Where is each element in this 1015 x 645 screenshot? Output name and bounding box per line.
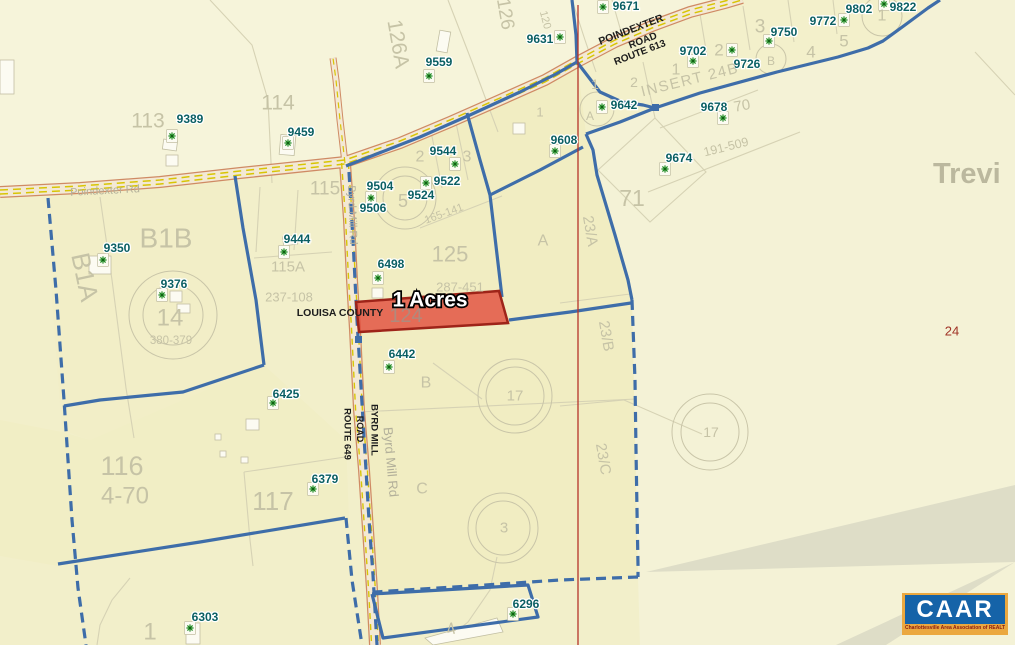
map-label: A xyxy=(586,109,594,123)
map-label: 125 xyxy=(432,242,469,267)
marker-dot xyxy=(883,3,885,5)
map-label: 3 xyxy=(463,149,472,166)
parcel-point-marker[interactable] xyxy=(373,272,384,285)
listing-number-label[interactable]: 9674 xyxy=(666,151,693,165)
map-label: A xyxy=(538,233,549,250)
building-footprint xyxy=(215,434,221,440)
building-footprint xyxy=(241,457,248,463)
marker-dot xyxy=(722,117,724,119)
listing-number-label[interactable]: 6296 xyxy=(513,597,540,611)
map-label: 2 xyxy=(630,74,638,90)
marker-dot xyxy=(601,106,603,108)
listing-number-label[interactable]: 6425 xyxy=(273,387,300,401)
listing-number-label[interactable]: 9376 xyxy=(161,277,188,291)
listing-number-label[interactable]: 9671 xyxy=(613,0,640,13)
marker-dot xyxy=(731,49,733,51)
marker-dot xyxy=(428,75,430,77)
map-label: 1 xyxy=(672,62,681,79)
listing-number-label[interactable]: 9350 xyxy=(104,241,131,255)
building-footprint xyxy=(513,123,525,134)
marker-dot xyxy=(454,163,456,165)
listing-number-label[interactable]: 6379 xyxy=(312,472,339,486)
map-label: 2 xyxy=(714,41,723,60)
map-label: 116 xyxy=(100,451,143,481)
map-label: Byrd Mill Rd xyxy=(345,185,359,245)
map-label: 237-108 xyxy=(265,290,313,305)
caar-logo[interactable]: CAAR Charlottesville Area Association of… xyxy=(902,593,1008,635)
marker-dot xyxy=(425,182,427,184)
parcel-point-marker[interactable] xyxy=(727,44,738,57)
marker-dot xyxy=(512,613,514,615)
map-label: 1 xyxy=(536,105,543,120)
listing-number-label[interactable]: 9544 xyxy=(430,144,457,158)
listing-number-label[interactable]: 9631 xyxy=(527,32,554,46)
building-footprint xyxy=(166,155,178,166)
marker-dot xyxy=(287,142,289,144)
listing-number-label[interactable]: 6303 xyxy=(192,610,219,624)
listing-number-label[interactable]: 9559 xyxy=(426,55,453,69)
listing-number-label[interactable]: 6442 xyxy=(389,347,416,361)
road-or-county-label: BYRD MILL xyxy=(369,404,380,456)
map-label: B1B xyxy=(140,223,193,254)
building-footprint xyxy=(170,291,182,302)
road-or-county-label: ROAD xyxy=(355,416,365,443)
acreage-label: 1 Acres xyxy=(392,289,467,312)
map-label: 115A xyxy=(271,259,305,276)
parcel-point-marker[interactable] xyxy=(167,130,178,143)
caar-logo-brand: CAAR xyxy=(905,595,1005,624)
map-label: 113 xyxy=(131,110,164,133)
listing-number-label[interactable]: 6498 xyxy=(378,257,405,271)
marker-dot xyxy=(370,197,372,199)
marker-dot xyxy=(559,36,561,38)
marker-dot xyxy=(312,488,314,490)
marker-dot xyxy=(768,40,770,42)
parcel-point-marker[interactable] xyxy=(424,70,435,83)
map-label: 2 xyxy=(416,149,425,166)
map-label: 114 xyxy=(261,92,295,115)
map-label: 4-70 xyxy=(101,483,149,510)
boundary-node xyxy=(652,104,659,111)
listing-number-label[interactable]: 9504 xyxy=(367,179,394,193)
parcel-point-marker[interactable] xyxy=(279,246,290,259)
map-label: 115 xyxy=(310,179,340,200)
map-label: 5 xyxy=(839,32,848,51)
map-label: 17 xyxy=(507,388,524,405)
marker-dot xyxy=(602,6,604,8)
map-label: 14 xyxy=(157,305,184,332)
listing-number-label[interactable]: 9444 xyxy=(284,232,311,246)
listing-number-label[interactable]: 9522 xyxy=(434,174,461,188)
building-footprint xyxy=(220,451,226,457)
marker-dot xyxy=(692,60,694,62)
listing-number-label[interactable]: 9389 xyxy=(177,112,204,126)
map-label: 17 xyxy=(703,424,719,440)
parcel-point-marker[interactable] xyxy=(450,158,461,171)
listing-number-label[interactable]: 9772 xyxy=(810,14,837,28)
marker-dot xyxy=(189,627,191,629)
listing-number-label[interactable]: 9822 xyxy=(890,0,917,14)
marker-dot xyxy=(102,259,104,261)
boundary-node xyxy=(355,336,362,343)
road-or-county-label: LOUISA COUNTY xyxy=(297,307,384,319)
map-label: 24 xyxy=(945,324,959,339)
listing-number-label[interactable]: 9506 xyxy=(360,201,387,215)
listing-number-label[interactable]: 9802 xyxy=(846,2,873,16)
parcel-map-canvas: 9671963195599389945995449522950495069524… xyxy=(0,0,1015,645)
map-label: 70 xyxy=(732,96,751,116)
map-label: Trevi xyxy=(933,158,1001,190)
map-label: 1 xyxy=(591,76,599,92)
caar-logo-tagline: Charlottesville Area Association of REAL… xyxy=(905,624,1005,633)
marker-dot xyxy=(161,294,163,296)
parcel-point-marker[interactable] xyxy=(384,361,395,374)
map-label: 1 xyxy=(143,619,156,645)
map-label: 4 xyxy=(806,43,815,62)
map-label: 3 xyxy=(500,520,508,537)
map-label: B xyxy=(421,375,432,392)
marker-dot xyxy=(388,366,390,368)
building-footprint xyxy=(372,288,383,298)
marker-dot xyxy=(272,402,274,404)
marker-dot xyxy=(554,150,556,152)
map-label: C xyxy=(416,481,428,498)
building-footprint xyxy=(246,419,259,430)
road-or-county-label: ROUTE 649 xyxy=(342,408,353,460)
building-footprint xyxy=(0,60,14,94)
marker-dot xyxy=(664,168,666,170)
map-label: 380-379 xyxy=(150,335,192,347)
listing-number-label[interactable]: 9702 xyxy=(680,44,707,58)
parcel-point-marker[interactable] xyxy=(597,101,608,114)
listing-number-label[interactable]: 9608 xyxy=(551,133,578,147)
parcel-point-marker[interactable] xyxy=(555,31,566,44)
marker-dot xyxy=(377,277,379,279)
listing-number-label[interactable]: 9524 xyxy=(408,188,435,202)
listing-number-label[interactable]: 9750 xyxy=(771,25,798,39)
map-label: 5 xyxy=(398,191,408,211)
parcel-map-viewport[interactable]: 9671963195599389945995449522950495069524… xyxy=(0,0,1015,645)
map-label: B xyxy=(767,54,775,68)
parcel-point-marker[interactable] xyxy=(98,254,109,267)
listing-number-label[interactable]: 9642 xyxy=(611,98,638,112)
parcel-point-marker[interactable] xyxy=(598,1,609,14)
marker-dot xyxy=(283,251,285,253)
map-label: 117 xyxy=(252,486,293,516)
map-label: 1 xyxy=(878,8,887,25)
marker-dot xyxy=(843,19,845,21)
listing-number-label[interactable]: 9459 xyxy=(288,125,315,139)
map-label: 71 xyxy=(619,185,645,211)
marker-dot xyxy=(171,135,173,137)
map-label: 3 xyxy=(755,17,766,38)
listing-number-label[interactable]: 9678 xyxy=(701,100,728,114)
